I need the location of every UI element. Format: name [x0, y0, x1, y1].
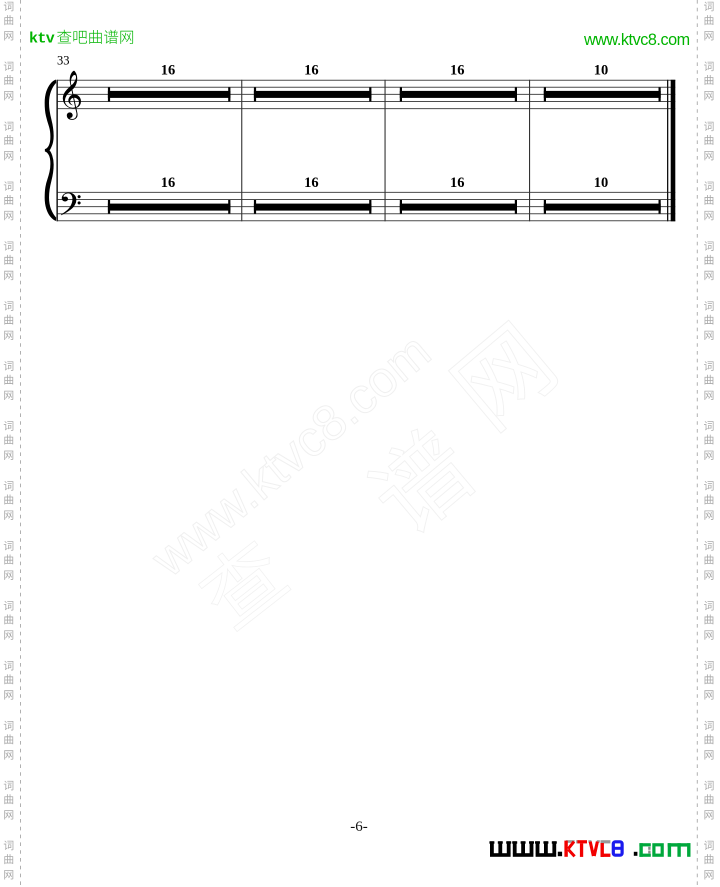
svg-text:16: 16	[304, 175, 319, 191]
svg-text:10: 10	[594, 63, 609, 79]
svg-text:16: 16	[161, 175, 176, 191]
svg-text:10: 10	[594, 175, 609, 191]
svg-text:33: 33	[57, 53, 70, 67]
svg-text:16: 16	[161, 63, 176, 79]
svg-text:16: 16	[450, 63, 465, 79]
svg-text:16: 16	[450, 175, 465, 191]
svg-text:16: 16	[304, 63, 319, 79]
